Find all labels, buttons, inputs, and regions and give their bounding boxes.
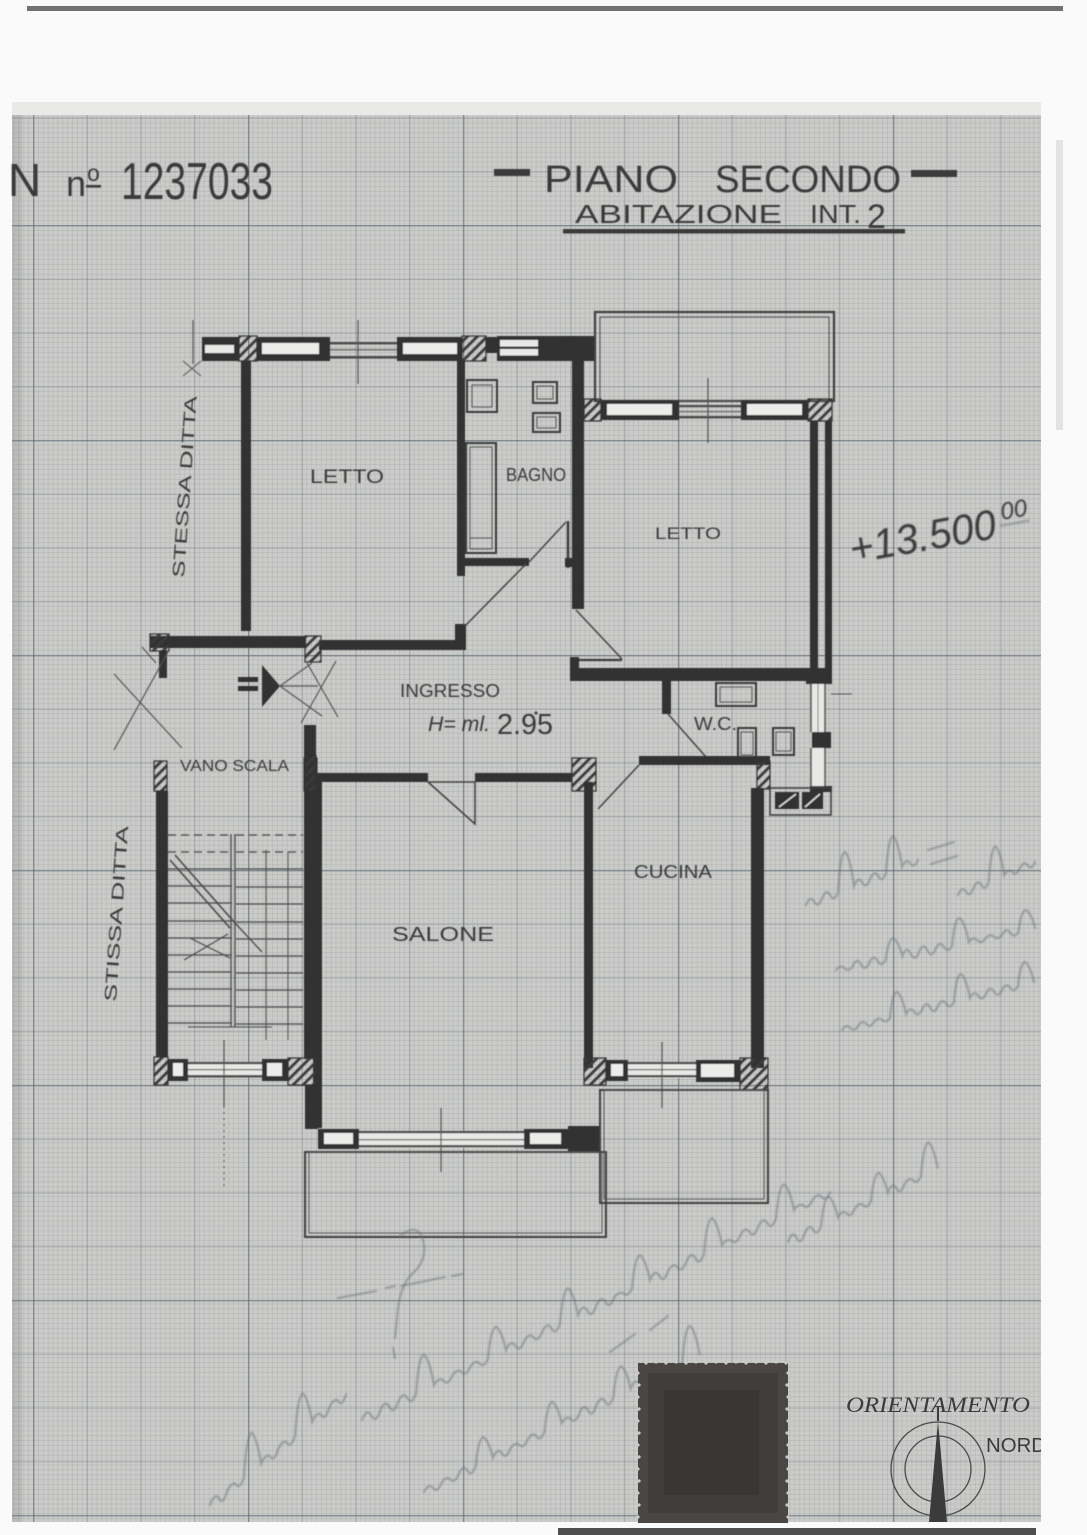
- svg-text:CUCINA: CUCINA: [634, 862, 712, 882]
- svg-text:NORD: NORD: [986, 1435, 1046, 1457]
- svg-text:N: N: [8, 154, 41, 206]
- svg-text:1237033: 1237033: [121, 153, 273, 211]
- svg-text:PIANO: PIANO: [544, 159, 678, 201]
- svg-text:LETTO: LETTO: [655, 524, 721, 543]
- svg-text:INT.: INT.: [810, 199, 861, 229]
- svg-text:SALONE: SALONE: [392, 924, 494, 946]
- svg-text:W.C.: W.C.: [694, 714, 737, 734]
- svg-text:n: n: [66, 163, 86, 204]
- svg-text:VANO SCALA: VANO SCALA: [180, 758, 289, 775]
- svg-text:BAGNO: BAGNO: [506, 465, 566, 485]
- svg-text:o: o: [87, 160, 100, 186]
- svg-text:INGRESSO: INGRESSO: [400, 681, 500, 701]
- svg-text:H= ml.: H= ml.: [428, 713, 490, 736]
- svg-text:SECONDO: SECONDO: [715, 159, 901, 201]
- svg-text:LETTO: LETTO: [310, 467, 384, 488]
- svg-text:2.95: 2.95: [497, 709, 553, 741]
- svg-text:ABITAZIONE: ABITAZIONE: [575, 199, 782, 229]
